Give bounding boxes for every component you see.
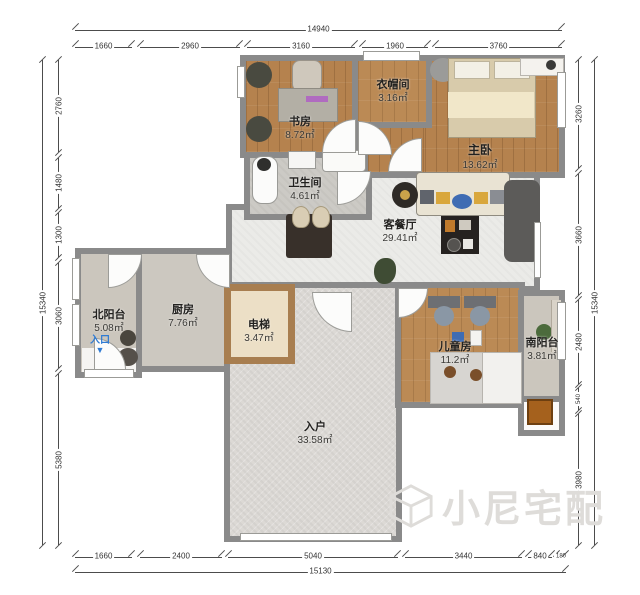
room-name: 衣帽间 [353,78,433,92]
entrance-marker: 入口 ▼ [80,331,120,354]
room-area: 3.81㎡ [511,350,573,363]
window-entry-bottom [240,533,392,541]
room-name: 北阳台 [78,308,140,322]
dim-top-seg: 1660 [75,47,132,48]
dim-label: 3440 [453,552,475,561]
window-north-balcony-left [72,258,80,300]
dim-label: 2760 [55,95,64,117]
dim-top-seg: 1960 [362,47,428,48]
tv-cabinet-item [459,220,471,230]
dim-left-total: 15340 [42,60,43,545]
dim-left-seg: 1300 [58,213,59,257]
dim-label: 15340 [39,289,48,315]
watermark: 小尼宅配 [388,478,606,533]
sofa-pillow [452,194,472,209]
room-label-study: 书房 8.72㎡ [260,115,340,142]
room-label-master: 主卧 13.62㎡ [440,143,520,172]
window-north-balcony-bottom [84,369,134,378]
room-label-kids: 儿童房 11.2㎡ [415,340,495,367]
dim-bottom-seg: 180 [556,557,566,558]
dim-label: 180 [554,553,568,559]
dim-label: 14940 [305,25,331,34]
room-label-south-balcony: 南阳台 3.81㎡ [511,336,573,363]
entrance-arrow-icon: ▼ [80,346,120,354]
room-name: 客餐厅 [360,218,440,232]
dim-label: 3760 [488,42,510,51]
sofa-pillow [436,192,450,204]
room-name: 入户 [275,420,355,434]
kids-chair [434,306,454,326]
window-top-cloakroom [363,51,420,61]
sofa-pillow [474,192,488,204]
room-label-entry: 入户 33.58㎡ [275,420,355,447]
living-plant-icon [374,258,396,284]
room-area: 29.41㎡ [360,232,440,245]
dim-top-seg: 2960 [140,47,240,48]
room-name: 主卧 [440,143,520,159]
room-label-bathroom: 卫生间 4.61㎡ [265,176,345,203]
kids-toy-bear-icon [470,369,482,381]
dim-bottom-seg: 5040 [228,557,398,558]
dim-top-total: 14940 [75,30,562,31]
window-living-right [534,222,541,278]
room-area: 8.72㎡ [260,129,340,142]
dim-label: 1660 [93,42,115,51]
room-name: 南阳台 [511,336,573,350]
dim-label: 2480 [575,331,584,353]
dim-label: 540 [576,392,582,406]
dim-top-seg: 3760 [435,47,562,48]
entrance-label: 入口 [80,331,120,346]
dim-bottom-seg: 1660 [75,557,132,558]
kids-toy-bear-icon [444,366,456,378]
room-area: 33.58㎡ [275,434,355,447]
dim-left-seg: 2760 [58,60,59,152]
dim-bottom-seg: 3440 [405,557,522,558]
tv-cabinet-item [463,239,473,249]
room-label-living: 客餐厅 29.41㎡ [360,218,440,245]
dim-label: 2960 [179,42,201,51]
room-area: 3.47㎡ [224,332,294,345]
master-pillow [454,61,490,79]
dim-bottom-total: 15130 [75,572,566,573]
room-label-kitchen: 厨房 7.76㎡ [143,303,223,330]
dim-right-seg: 3260 [578,60,579,168]
dim-label: 840 [531,552,548,561]
dim-right-seg: 2480 [578,300,579,384]
window-master-right [557,72,566,128]
kids-chair [470,306,490,326]
room-name: 书房 [260,115,340,129]
dim-label: 3660 [575,224,584,246]
room-area: 13.62㎡ [440,159,520,172]
coffee-table-center [400,190,410,200]
room-name: 儿童房 [415,340,495,354]
room-label-elevator: 电梯 3.47㎡ [224,318,294,345]
window-study-left [237,66,245,98]
dim-right-total: 15340 [594,60,595,545]
dim-left-seg: 3060 [58,263,59,368]
dim-bottom-seg: 840 [528,557,552,558]
floor-plan-canvas: 书房 8.72㎡ 衣帽间 3.16㎡ 主卧 13.62㎡ 卫生间 4.61㎡ 客… [0,0,640,595]
nook-chair [527,399,553,425]
study-plant-icon [246,62,272,88]
dim-label: 15340 [591,289,600,315]
sofa-pillow [490,190,504,204]
room-name: 厨房 [143,303,223,317]
tv-cabinet-item [447,238,461,252]
tv-cabinet-item [445,220,455,232]
cube-logo-icon [388,483,434,529]
dim-left-seg: 1480 [58,158,59,208]
room-area: 3.16㎡ [353,92,433,105]
dim-bottom-seg: 2400 [140,557,222,558]
dim-label: 1960 [384,42,406,51]
dining-chair [312,206,330,228]
room-area: 7.76㎡ [143,317,223,330]
dim-label: 1660 [93,552,115,561]
master-dresser-stool [546,60,556,70]
dim-label: 15130 [307,567,333,576]
dim-label: 3060 [55,305,64,327]
dining-chair [292,206,310,228]
room-area: 4.61㎡ [265,190,345,203]
watermark-text: 小尼宅配 [442,478,606,533]
dim-label: 1300 [55,224,64,246]
dim-label: 5040 [302,552,324,561]
dim-top-seg: 3160 [247,47,355,48]
dim-label: 1480 [55,172,64,194]
room-label-cloakroom: 衣帽间 3.16㎡ [353,78,433,105]
room-name: 卫生间 [265,176,345,190]
dim-right-seg: 540 [578,388,579,410]
dim-right-seg: 3660 [578,174,579,295]
dim-label: 2400 [170,552,192,561]
dim-label: 3160 [290,42,312,51]
bathroom-sink [288,151,316,169]
dim-label: 3260 [575,103,584,125]
study-desk-item [306,96,328,102]
sofa-pillow [420,190,434,204]
master-blanket [448,92,534,118]
room-area: 11.2㎡ [415,354,495,367]
dim-label: 5380 [55,449,64,471]
bathroom-toilet-tank [257,158,271,171]
dim-left-seg: 5380 [58,374,59,545]
room-name: 电梯 [224,318,294,332]
